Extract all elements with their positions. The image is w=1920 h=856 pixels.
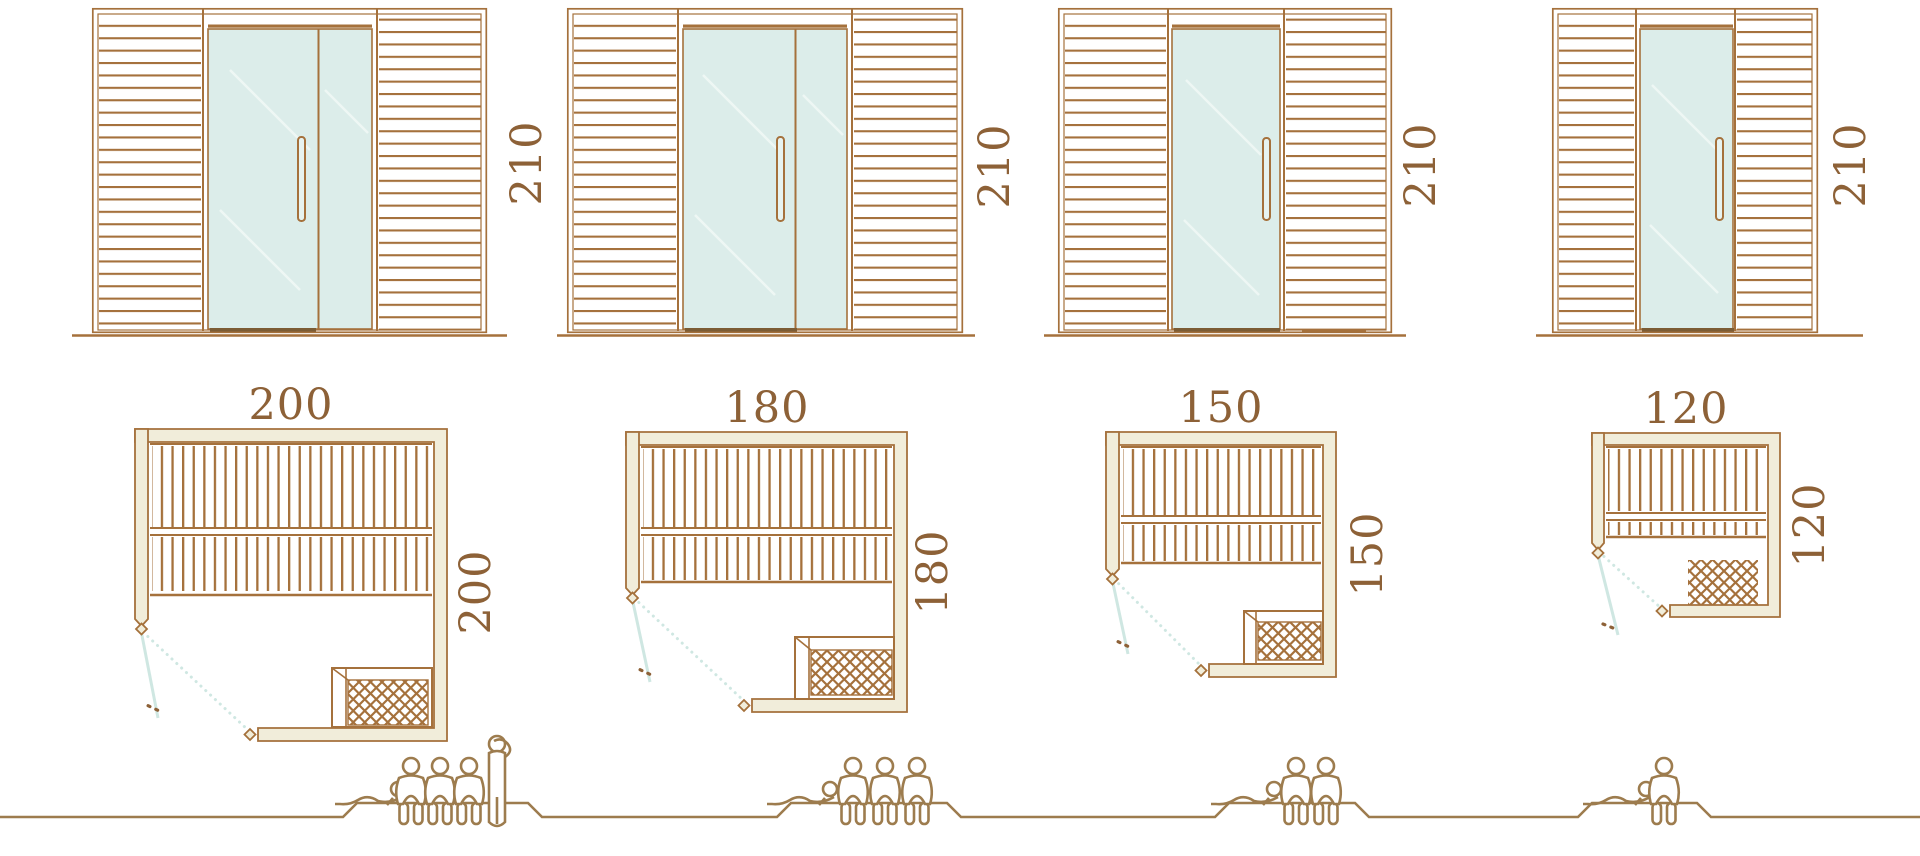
door-lintel	[208, 25, 372, 28]
heater-grill	[1688, 560, 1758, 605]
door-handle-icon	[777, 137, 784, 221]
elevation-front-view-120	[1530, 0, 1870, 342]
capacity-strip	[0, 750, 1920, 856]
door-pivot	[136, 624, 147, 635]
wall-slats-right	[1286, 16, 1386, 330]
door-lintel	[1640, 25, 1733, 28]
dim-label-height-150: 210	[1396, 95, 1446, 235]
ground-line	[0, 803, 1920, 817]
heater-grill	[1258, 622, 1321, 660]
elevation-front-view-180	[545, 0, 985, 342]
wall-slats-right	[379, 16, 481, 330]
door-handle-icon	[146, 704, 160, 713]
floor-plan-200	[129, 429, 453, 775]
dim-label-depth-120: 120	[1785, 455, 1835, 595]
wall-slats-right	[854, 16, 957, 330]
door-pivot	[1657, 606, 1668, 617]
door-threshold	[1642, 328, 1734, 332]
wall-slats-left	[99, 16, 201, 330]
dim-label-width-150: 150	[1151, 383, 1291, 433]
door-handle-icon	[298, 137, 305, 221]
bench-slats	[1123, 525, 1321, 561]
elevation-front-view-200	[70, 0, 509, 342]
sauna-dimensions-diagram: 210 210 210 210	[0, 0, 1920, 856]
door-handle-icon	[1601, 622, 1615, 630]
capacity-figures-group-180	[767, 758, 932, 824]
wall-slats-left	[1559, 16, 1634, 330]
bench-slats	[1608, 449, 1764, 511]
door-pivot	[245, 729, 256, 740]
door-pivot	[739, 700, 750, 711]
door-handle-icon	[1263, 138, 1270, 220]
dim-label-height-120: 210	[1826, 95, 1876, 235]
bench-slats	[643, 537, 892, 580]
dim-label-height-180: 210	[970, 96, 1020, 236]
wall-slats-left	[1065, 16, 1166, 330]
dim-label-width-120: 120	[1616, 384, 1756, 434]
capacity-figures-group-150	[1211, 758, 1341, 824]
dim-label-width-180: 180	[697, 383, 837, 433]
door-lintel	[683, 25, 847, 28]
door-lintel	[1172, 25, 1280, 28]
door-swing-arc	[634, 598, 744, 701]
bench-slats	[643, 449, 892, 527]
door-threshold	[210, 328, 316, 332]
door-threshold	[1174, 328, 1280, 332]
bench-slats	[152, 537, 430, 591]
dim-label-depth-180: 180	[908, 502, 958, 642]
dim-label-depth-200: 200	[451, 522, 501, 662]
door-pivot	[1593, 548, 1604, 559]
door-pivot	[1196, 665, 1207, 676]
door-pivot	[627, 593, 638, 604]
bench-slats	[152, 446, 430, 527]
wall-slats-left	[574, 16, 676, 330]
dim-label-height-200: 210	[502, 93, 552, 233]
door-handle-icon	[1116, 640, 1130, 649]
floor-plan-150	[1100, 432, 1342, 711]
door-threshold	[685, 328, 797, 332]
plan-wall-left	[626, 432, 639, 595]
plan-wall-left	[135, 429, 148, 626]
heater-grill	[348, 680, 428, 725]
floor-plan-180	[620, 432, 913, 746]
door-open-leaf	[1598, 555, 1618, 635]
capacity-figures-group-120	[1583, 758, 1679, 824]
door-handle-icon	[1716, 138, 1723, 220]
heater-grill	[811, 650, 892, 695]
plan-wall-left	[1106, 432, 1119, 576]
bench-slats	[1123, 449, 1321, 515]
wall-slats-right	[1737, 16, 1812, 330]
dim-label-width-200: 200	[221, 380, 361, 430]
dim-label-depth-150: 150	[1343, 484, 1393, 624]
door-handle-icon	[638, 668, 652, 677]
elevation-front-view-150	[1036, 0, 1414, 342]
capacity-figures-group-200	[335, 736, 510, 826]
plan-wall-left	[1592, 433, 1604, 550]
door-pivot	[1107, 574, 1118, 585]
bench-slats	[1608, 522, 1764, 535]
